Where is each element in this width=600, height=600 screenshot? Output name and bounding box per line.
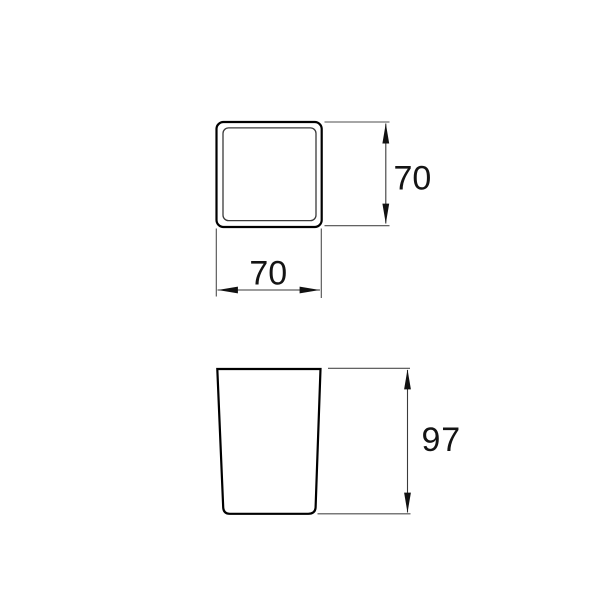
- svg-text:70: 70: [249, 255, 287, 293]
- svg-text:70: 70: [394, 160, 432, 198]
- svg-text:97: 97: [422, 421, 461, 459]
